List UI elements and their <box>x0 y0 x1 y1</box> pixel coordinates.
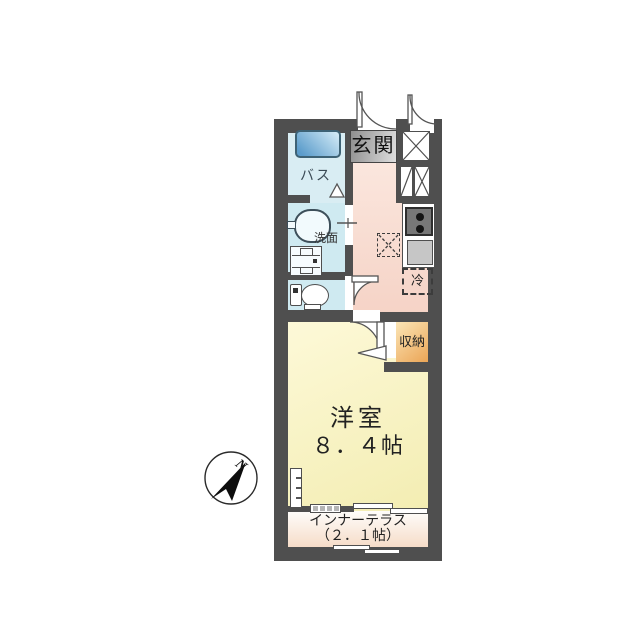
stove-burner-1 <box>416 213 424 221</box>
compass-needle <box>211 462 246 501</box>
pipe-space-box <box>402 131 430 161</box>
meter-box-right <box>414 166 430 197</box>
floor-hatch <box>377 233 400 257</box>
storage-door-opening <box>384 322 396 358</box>
inner-terrace-label: インナーテラス （２．１帖） <box>288 512 428 543</box>
louver-sq-3 <box>327 506 332 511</box>
floorplan-canvas: 玄関 バス 洗面 冷 収納 <box>0 0 640 640</box>
window-left-tick-3 <box>296 497 301 499</box>
louver-sq-4 <box>334 506 339 511</box>
louver-sq-2 <box>320 506 325 511</box>
toilet-flush-button <box>293 288 298 293</box>
compass-circle <box>205 452 257 504</box>
western-room-size: ８．４帖 <box>288 433 428 458</box>
toilet-door-opening <box>345 276 353 308</box>
compass-north-label: N <box>231 456 250 475</box>
storage-label: 収納 <box>399 335 425 350</box>
sliding-door-panel-1 <box>353 503 393 509</box>
refrigerator-space: 冷 <box>402 268 433 295</box>
wall-washroom-right <box>345 245 353 276</box>
washroom-door-opening <box>345 205 353 245</box>
entrance-area: 玄関 <box>350 130 397 163</box>
refrigerator-label: 冷 <box>411 274 424 289</box>
washer-pan-drain <box>313 259 317 263</box>
stove-burner-2 <box>416 225 424 233</box>
wall-room-top-right <box>380 312 428 322</box>
washbasin-label: 洗面 <box>314 232 338 246</box>
western-room-label: 洋室 ８．４帖 <box>288 405 428 458</box>
western-room-name: 洋室 <box>288 405 428 433</box>
storage-label-wrap: 収納 <box>396 322 428 362</box>
wall-room-top-left <box>274 310 353 322</box>
entrance-label: 玄関 <box>352 135 396 158</box>
wall-bath-bottom <box>288 195 310 203</box>
louver-sq-1 <box>313 506 318 511</box>
terrace-window-panel-2 <box>364 549 400 554</box>
inner-terrace-size: （２．１帖） <box>288 527 428 543</box>
room-door-opening <box>353 310 380 322</box>
wall-left <box>274 119 288 561</box>
bath-label: バス <box>300 167 332 183</box>
toilet-base <box>304 304 321 310</box>
stove <box>405 207 433 236</box>
meter-box-left <box>400 166 413 197</box>
kitchen-sink <box>407 240 433 265</box>
bathtub <box>295 130 341 158</box>
wall-storage-bottom <box>384 362 428 372</box>
window-left-tick-1 <box>296 477 301 479</box>
window-left-tick-2 <box>296 487 301 489</box>
inner-terrace-name: インナーテラス <box>288 512 428 528</box>
washbasin-faucet <box>287 221 296 229</box>
